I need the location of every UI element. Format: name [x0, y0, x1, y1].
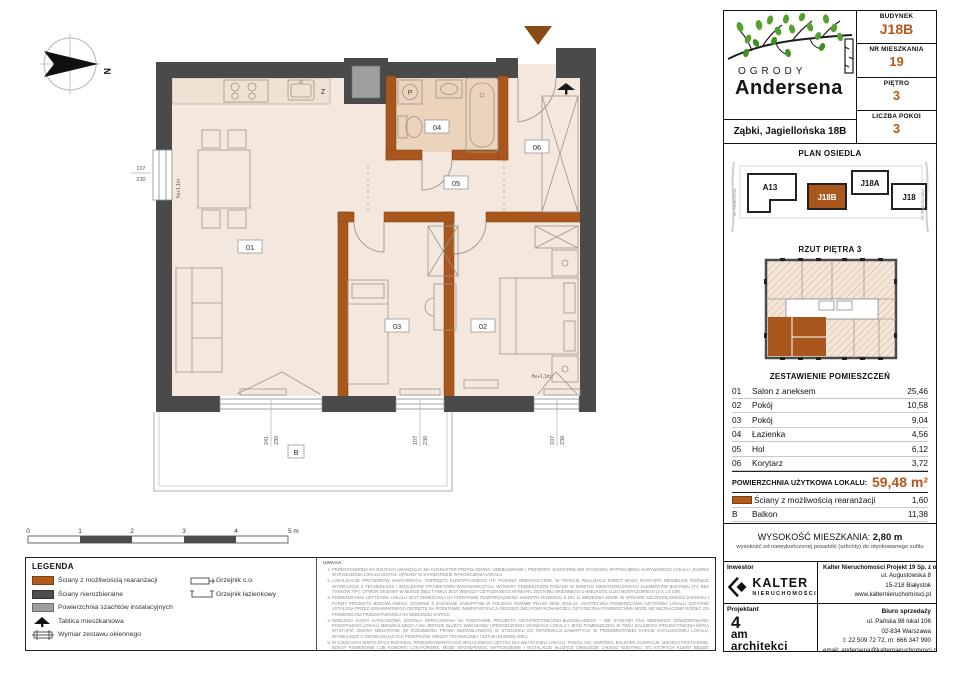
svg-text:241: 241 [264, 436, 270, 445]
note-item: PRZEDSTAWIONA NA RZUTACH ARANŻACJA MA CH… [332, 567, 709, 578]
contact-footer: Inwestor KALTER NIERUCHOMOŚCI Kalter Nie… [724, 561, 936, 651]
highlighted-unit [768, 317, 826, 356]
svg-text:107: 107 [136, 166, 145, 172]
field-nr-mieszkania: NR MIESZKANIA 19 [857, 44, 936, 77]
svg-text:5 m: 5 m [288, 528, 299, 535]
street-right-label: ul. Jagiellońska [920, 189, 925, 220]
fix-label-left: fix+1,1m [176, 179, 182, 198]
room-label-salon: 01 [246, 243, 254, 252]
disclaimer-notes: UWAGA: PRZEDSTAWIONA NA RZUTACH ARANŻACJ… [317, 558, 715, 650]
svg-text:230: 230 [274, 436, 280, 445]
building-a13-label: A13 [763, 183, 778, 192]
apartment-rooms [172, 64, 580, 396]
designer-cell: Projektant 4 am architekci [724, 604, 818, 651]
apartment-floor-plan: N [0, 0, 720, 556]
table-row: 05 Hol 6,12 [732, 442, 928, 457]
legend-item: Powierzchnia szachtów instalacyjnych [32, 601, 190, 615]
4am-architekci-logo: 4 am architekci [731, 614, 817, 651]
notes-title: UWAGA: [323, 561, 709, 566]
rearrangeable-walls-row: Ściany z możliwością rearanżacji 1,60 [732, 493, 928, 508]
apartment-height: WYSOKOŚĆ MIESZKANIA: 2,80 m wysokość od … [724, 532, 936, 550]
window-dimension-icon [32, 628, 58, 642]
svg-text:4: 4 [234, 528, 238, 535]
legend-item: Wymiar zestawu okiennego [32, 628, 190, 642]
north-compass-icon: N [40, 34, 112, 94]
birch-trunk [845, 39, 853, 73]
bathroom-radiator-icon [190, 589, 216, 599]
table-row: 02 Pokój 10,58 [732, 399, 928, 414]
legend-item: Grzejnik c.o. [190, 574, 310, 588]
brand-word-andersena: Andersena [735, 77, 856, 100]
field-budynek: BUDYNEK J18B [857, 11, 936, 44]
entrance-arrow-icon [524, 26, 552, 45]
legend-title: LEGENDA [32, 562, 310, 571]
kalter-diamond-icon [728, 574, 749, 600]
company-website[interactable]: www.kalternieruchomosci.pl [823, 590, 931, 600]
apartment-board-icon [32, 615, 58, 627]
building-j18b-label: J18B [817, 193, 836, 202]
svg-text:107: 107 [550, 436, 556, 445]
divider [724, 523, 936, 524]
floor-overview-map [724, 257, 935, 363]
legend-and-notes-strip: LEGENDA Ściany z możliwością rearanżacji… [25, 557, 716, 651]
investor-cell: Inwestor KALTER NIERUCHOMOŚCI [724, 562, 818, 604]
total-area-row: POWIERZCHNIA UŻYTKOWA LOKALU: 59,48 m² [732, 471, 928, 493]
room-label-lazienka: 04 [433, 123, 441, 132]
table-row: 01 Salon z aneksem 25,46 [732, 384, 928, 399]
table-row: 04 Łazienka 4,56 [732, 428, 928, 443]
note-item: W CZĘŚCIACH WSPÓLNYCH BUDYNKU, PRZEWIDYW… [332, 640, 709, 650]
svg-text:N: N [102, 68, 112, 75]
scale-bar: 0 1 2 3 4 5 m [26, 528, 299, 543]
total-area-label: POWIERZCHNIA UŻYTKOWA LOKALU: [732, 478, 872, 487]
svg-text:230: 230 [560, 436, 566, 445]
kitchen-z-label: Z [321, 89, 326, 96]
field-pietro: PIĘTRO 3 [857, 78, 936, 111]
note-item: POWIERZCHNIA UŻYTKOWA LOKALU JEST OKREŚL… [332, 595, 709, 617]
svg-text:107: 107 [413, 436, 419, 445]
sales-office-cell: Biuro sprzedaży ul. Pańska 98 lokal 106 … [818, 604, 936, 651]
room-label-pokoj-03: 03 [393, 322, 401, 331]
room-label-pokoj-02: 02 [479, 322, 487, 331]
investor-label: Inwestor [727, 564, 754, 571]
company-cell: Kalter Nieruchomości Projekt 19 Sp. z o.… [818, 562, 936, 604]
total-area-value: 59,48 m² [872, 474, 928, 490]
svg-text:230: 230 [136, 177, 145, 183]
fix-label-pokoj-02: fix+1,1m [532, 374, 551, 380]
room-label-korytarz: 06 [533, 143, 541, 152]
brand-logo: OGRODY Andersena [724, 11, 856, 119]
street-left-label: ul. Andersena [732, 188, 737, 216]
room-label-balkon: B [293, 448, 298, 457]
structural-wall-swatch [32, 590, 58, 599]
balcony-row: B Balkon 11,38 [732, 508, 928, 523]
table-row: 06 Korytarz 3,72 [732, 457, 928, 472]
sales-email[interactable]: email: andersena@kalternieruchomosci.pl [823, 646, 931, 651]
title-block-panel: OGRODY Andersena Ząbki, Jagiellońska 18B… [723, 10, 937, 652]
rooms-table-title: ZESTAWIENIE POMIESZCZEŃ [732, 372, 928, 381]
project-header: OGRODY Andersena Ząbki, Jagiellońska 18B… [724, 11, 936, 144]
building-j18-label: J18 [902, 193, 916, 202]
rearrangeable-wall-swatch [732, 496, 752, 504]
rearrangeable-wall-swatch [32, 576, 58, 585]
note-item: LOKALIZACJE PRZYBORÓW SANITARNYCH, OSPRZ… [332, 578, 709, 594]
floor-plan-sheet: { "header": { "brand_line1": "OGRODY", "… [0, 0, 960, 678]
height-label: WYSOKOŚĆ MIESZKANIA: [758, 532, 871, 542]
svg-text:230: 230 [423, 436, 429, 445]
rooms-table: ZESTAWIENIE POMIESZCZEŃ 01 Salon z aneks… [724, 372, 936, 522]
legend-item: Ściany nierozbieralne [32, 588, 190, 602]
svg-text:2: 2 [130, 528, 134, 535]
radiator-co-icon [190, 576, 216, 586]
legend-item: Grzejnik łazienkowy [190, 588, 310, 602]
svg-text:0: 0 [26, 528, 30, 535]
room-label-hol: 05 [452, 179, 460, 188]
height-value: 2,80 m [873, 532, 903, 543]
kalter-logo: KALTER NIERUCHOMOŚCI [728, 574, 817, 600]
building-j18a-label: J18A [860, 179, 879, 188]
washer-p-label: P [408, 90, 412, 97]
project-address: Ząbki, Jagiellońska 18B [724, 119, 856, 143]
table-row: 03 Pokój 9,04 [732, 413, 928, 428]
svg-text:3: 3 [182, 528, 186, 535]
unit-facts: BUDYNEK J18B NR MIESZKANIA 19 PIĘTRO 3 L… [856, 11, 936, 143]
site-plan-title: PLAN OSIEDLA [724, 149, 936, 158]
legend-item: Ściany z możliwością rearanżacji [32, 574, 190, 588]
floor-overview-title: RZUT PIĘTRA 3 [724, 245, 936, 254]
field-liczba-pokoi: LICZBA POKOI 3 [857, 111, 936, 143]
legend-item: Tablica mieszkaniowa [32, 615, 190, 629]
installation-shaft [352, 66, 380, 98]
site-plan-map: A13 J18B J18A J18 ul. Andersena ul. Jagi… [724, 158, 935, 234]
svg-text:1: 1 [78, 528, 82, 535]
shaft-swatch [32, 603, 58, 612]
designer-label: Projektant [727, 606, 759, 613]
note-item: NINIEJSZA KARTA KATALOGOWA ZOSTAŁA OPRAC… [332, 618, 709, 640]
height-note: wysokość od niewykończonej posadzki (szl… [724, 544, 936, 550]
legend: LEGENDA Ściany z możliwością rearanżacji… [26, 558, 317, 650]
